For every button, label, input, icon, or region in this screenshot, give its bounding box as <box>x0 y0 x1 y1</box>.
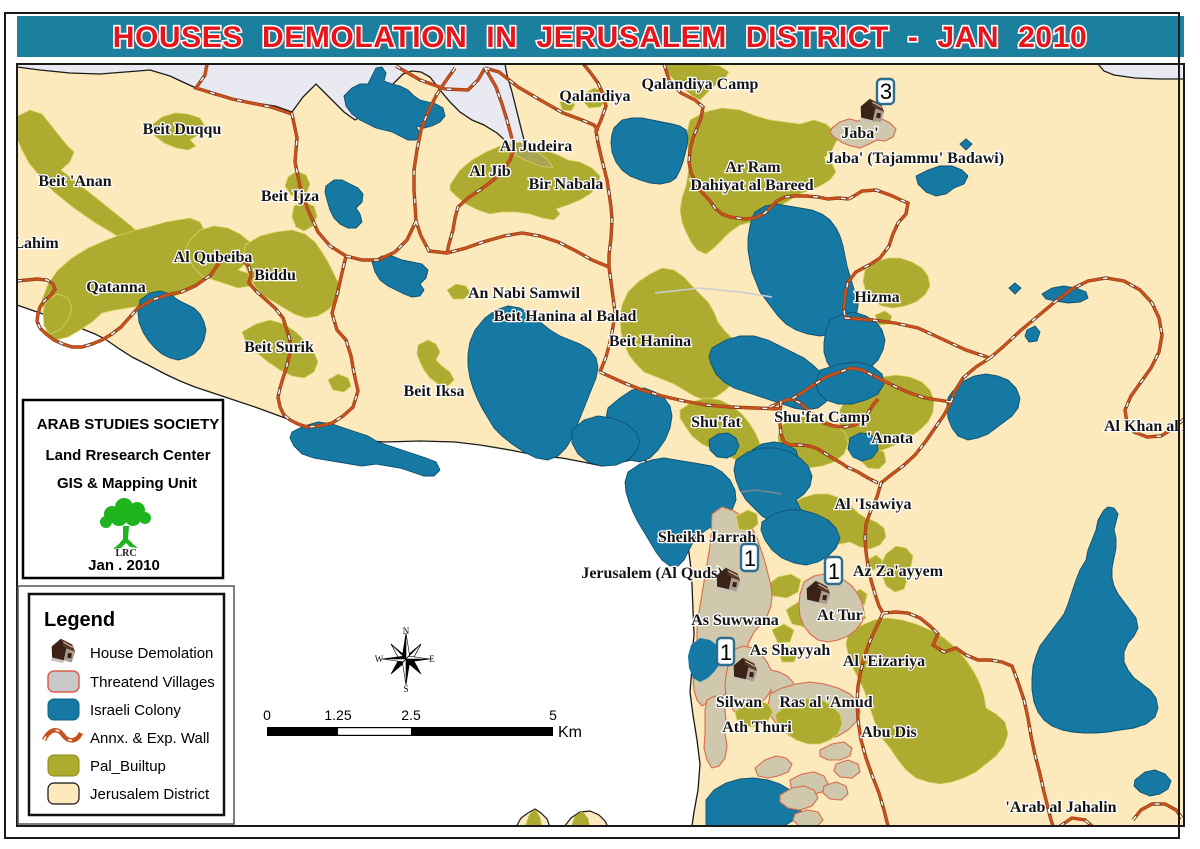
svg-text:Threatend Villages: Threatend Villages <box>90 674 215 691</box>
svg-text:Abu Dis: Abu Dis <box>861 724 917 741</box>
svg-text:5: 5 <box>549 707 557 723</box>
svg-text:Jerusalem District: Jerusalem District <box>90 786 210 803</box>
svg-text:Jaba': Jaba' <box>841 125 878 142</box>
svg-text:Al 'Eizariya: Al 'Eizariya <box>843 653 925 670</box>
svg-text:Beit Surik: Beit Surik <box>244 339 314 356</box>
svg-text:2.5: 2.5 <box>401 707 421 723</box>
svg-text:Jaba' (Tajammu' Badawi): Jaba' (Tajammu' Badawi) <box>826 150 1004 167</box>
svg-text:Pal_Builtup: Pal_Builtup <box>90 758 166 775</box>
svg-text:House Demolation: House Demolation <box>90 645 213 662</box>
svg-text:ARAB STUDIES SOCIETY: ARAB STUDIES SOCIETY <box>37 416 220 433</box>
svg-text:HOUSES DEMOLATION IN JERUSA: HOUSES DEMOLATION IN JERUSALEM DISTRICT … <box>113 21 1088 54</box>
svg-text:Legend: Legend <box>44 609 115 631</box>
svg-text:1: 1 <box>720 640 732 665</box>
svg-text:Dahiyat al Bareed: Dahiyat al Bareed <box>690 177 813 194</box>
svg-text:Beit Duqqu: Beit Duqqu <box>143 121 222 138</box>
svg-text:E: E <box>429 654 435 664</box>
svg-text:0: 0 <box>263 707 271 723</box>
svg-text:As Shayyah: As Shayyah <box>750 642 831 659</box>
svg-text:Land Rresearch Center: Land Rresearch Center <box>45 447 210 464</box>
svg-text:Bir Nabala: Bir Nabala <box>529 176 604 193</box>
svg-text:Biddu: Biddu <box>254 267 296 284</box>
svg-text:1: 1 <box>744 546 756 571</box>
svg-text:Al Judeira: Al Judeira <box>500 138 572 155</box>
svg-text:Al 'Isawiya: Al 'Isawiya <box>835 496 912 513</box>
svg-text:Qatanna: Qatanna <box>86 279 146 296</box>
svg-text:'Arab al Jahalin: 'Arab al Jahalin <box>1005 799 1116 816</box>
svg-text:At Tur: At Tur <box>817 607 863 624</box>
svg-text:W: W <box>375 654 384 664</box>
svg-text:S: S <box>403 684 408 694</box>
svg-text:Shu'fat Camp: Shu'fat Camp <box>774 409 870 426</box>
svg-text:Jerusalem (Al Quds): Jerusalem (Al Quds) <box>581 565 722 582</box>
svg-text:Beit Hanina al Balad: Beit Hanina al Balad <box>494 308 637 325</box>
svg-text:GIS & Mapping Unit: GIS & Mapping Unit <box>57 475 197 492</box>
svg-text:1: 1 <box>828 559 840 584</box>
svg-text:Beit Hanina: Beit Hanina <box>609 333 691 350</box>
svg-text:Qalandiya Camp: Qalandiya Camp <box>642 76 759 93</box>
svg-text:Km: Km <box>558 724 582 741</box>
svg-text:Qalandiya: Qalandiya <box>559 88 630 105</box>
svg-text:Ar Ram: Ar Ram <box>725 159 781 176</box>
svg-text:Beit 'Anan: Beit 'Anan <box>38 173 111 190</box>
svg-text:Silwan: Silwan <box>716 694 762 711</box>
svg-text:3: 3 <box>880 79 892 104</box>
svg-text:As Suwwana: As Suwwana <box>691 612 779 629</box>
svg-text:Ras al 'Amud: Ras al 'Amud <box>779 694 872 711</box>
svg-text:Beit Iksa: Beit Iksa <box>404 383 465 400</box>
svg-text:Jan . 2010: Jan . 2010 <box>88 557 160 574</box>
svg-text:Al Khan al A: Al Khan al A <box>1104 418 1194 435</box>
svg-text:Beit Ijza: Beit Ijza <box>261 188 319 205</box>
svg-text:Az Za'ayyem: Az Za'ayyem <box>853 563 944 580</box>
svg-text:N: N <box>403 626 410 636</box>
svg-text:Shu'fat: Shu'fat <box>691 414 741 431</box>
svg-text:Annx. & Exp. Wall: Annx. & Exp. Wall <box>90 730 210 747</box>
svg-text:1.25: 1.25 <box>324 707 351 723</box>
svg-text:Sheikh Jarrah: Sheikh Jarrah <box>658 529 756 546</box>
svg-text:Al Qubeiba: Al Qubeiba <box>174 249 253 266</box>
svg-text:Al Jib: Al Jib <box>469 163 510 180</box>
svg-text:Hizma: Hizma <box>854 289 899 306</box>
svg-text:An Nabi Samwil: An Nabi Samwil <box>468 285 581 302</box>
svg-text:Ath Thuri: Ath Thuri <box>722 719 792 736</box>
svg-text:Lahim: Lahim <box>13 235 59 252</box>
svg-text:'Anata: 'Anata <box>867 430 913 447</box>
svg-text:Israeli Colony: Israeli Colony <box>90 702 181 719</box>
